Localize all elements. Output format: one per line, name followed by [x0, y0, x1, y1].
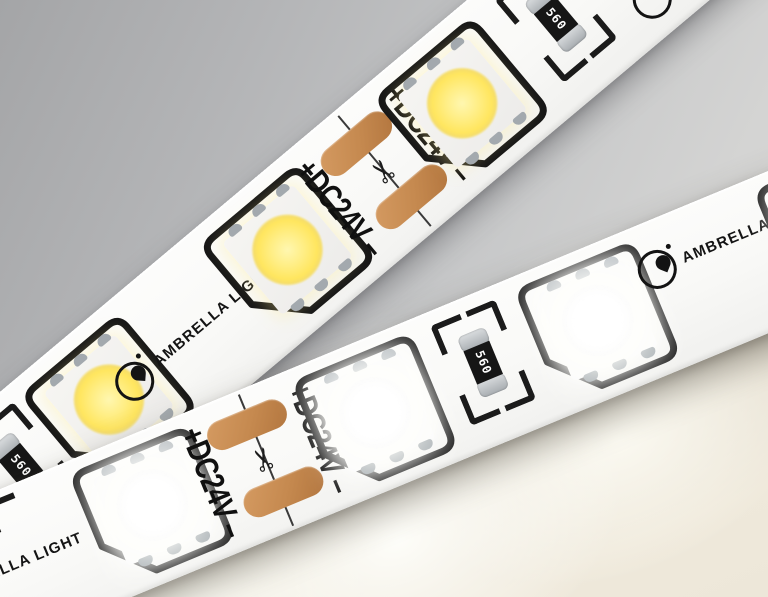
resistor-module: 560 — [430, 299, 536, 426]
resistor-value: 560 — [472, 349, 494, 377]
brand-name: AMBRELLA LIGHT — [0, 529, 85, 597]
smd-resistor: 560 — [523, 0, 588, 54]
led-die-cool — [551, 274, 645, 368]
smd-resistor: 560 — [457, 326, 510, 398]
ambrella-logo-icon — [624, 0, 679, 26]
scissors-icon: ✂ — [242, 436, 286, 480]
brand-name: AMBRELLA LIGHT — [679, 193, 768, 266]
led-die-cool — [328, 366, 422, 460]
brand-mark: AMBRELLA LIGHT — [0, 520, 89, 597]
brand-mark: AMBRELLA LIGHT — [632, 185, 768, 293]
led-die-cool — [105, 458, 199, 552]
corner-bracket-icon — [0, 492, 25, 534]
resistor-value: 560 — [543, 5, 570, 33]
brand-mark: AMBRELLA LIGHT — [625, 0, 768, 25]
led-strip-product-photo: 560 AMBRELLA LIGHT — [0, 0, 768, 597]
